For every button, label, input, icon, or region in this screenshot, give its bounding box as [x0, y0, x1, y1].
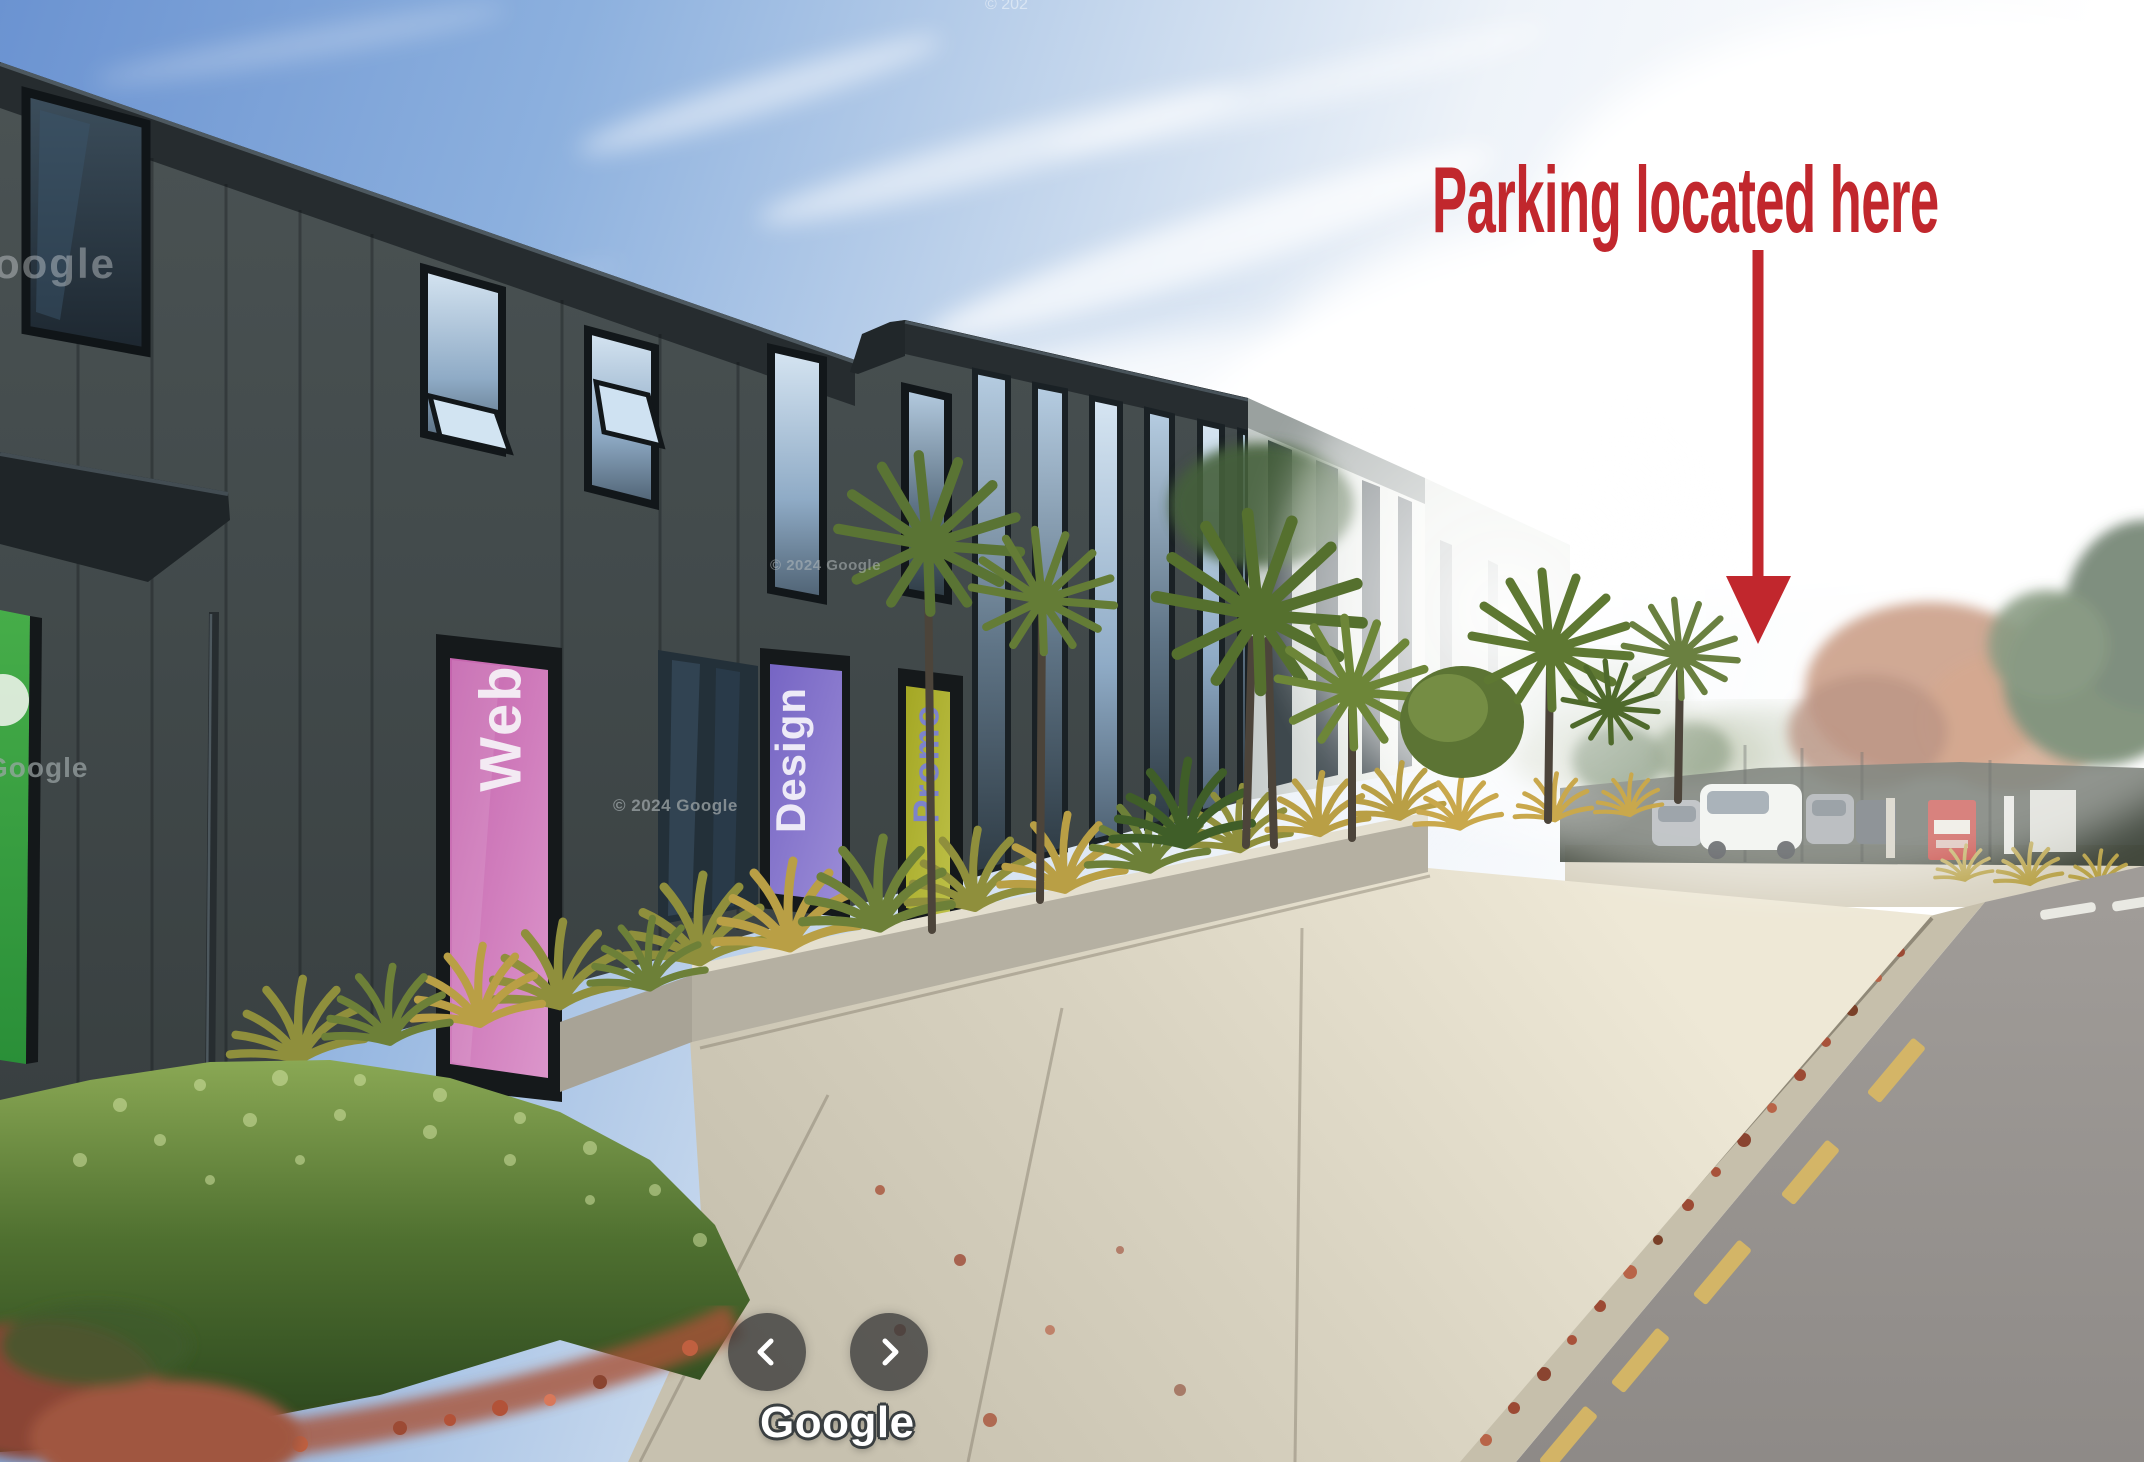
chevron-left-icon	[747, 1332, 787, 1372]
parking-arrow	[1700, 246, 1820, 656]
banner-web: Web	[436, 634, 562, 1102]
streetview-navigation	[728, 1313, 928, 1391]
banner-design-label: Design	[767, 687, 814, 833]
google-watermark-top: © 202	[985, 0, 1028, 14]
banner-web-label: Web	[468, 664, 533, 791]
green-banner	[0, 610, 42, 1064]
previous-button[interactable]	[728, 1313, 806, 1391]
google-watermark-top-left: oogle	[0, 240, 116, 288]
banner-design: Design	[760, 648, 850, 918]
copyright-watermark-lower: © 2024 Google	[613, 796, 738, 816]
parking-annotation-label: Parking located here	[1432, 146, 1939, 254]
copyright-watermark-upper: © 2024 Google	[770, 557, 881, 574]
google-watermark-left: Google	[0, 752, 88, 784]
street-view-screenshot: Web Design Promo	[0, 0, 2144, 1462]
chevron-right-icon	[869, 1332, 909, 1372]
next-button[interactable]	[850, 1313, 928, 1391]
arrow-down-icon	[1700, 246, 1820, 656]
google-logo[interactable]: Google	[760, 1398, 915, 1448]
